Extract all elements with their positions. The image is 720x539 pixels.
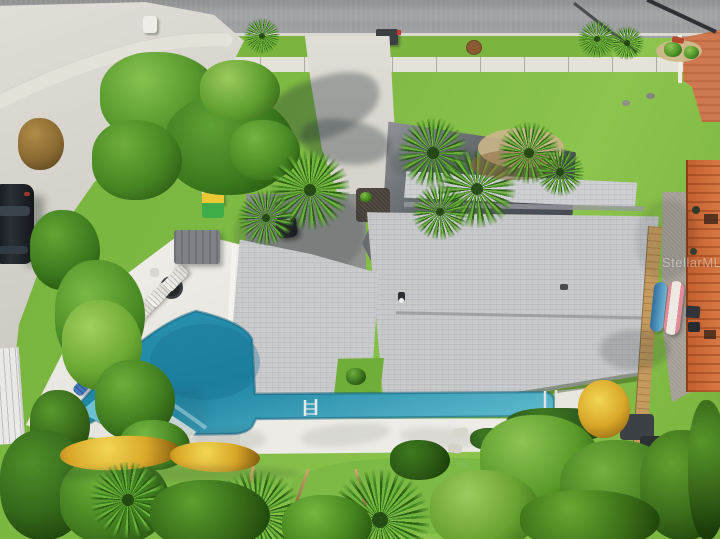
dry-palm (18, 118, 64, 170)
roof-vent-neighbor (692, 206, 700, 214)
neighbor-orange-house (686, 160, 720, 392)
ac-unit (686, 306, 701, 319)
orange-house-window (704, 330, 716, 339)
orange-house-window (704, 214, 718, 224)
fire-pit-chair (150, 268, 159, 277)
pergola-outdoor-kitchen (174, 230, 220, 264)
stepping-stone (448, 443, 463, 453)
aerial-photo-stage: StellarMLS (0, 0, 720, 539)
golden-croton-bush (578, 380, 630, 438)
watermark: StellarMLS (662, 255, 720, 270)
foliage-cluster (92, 120, 182, 200)
house-rear-shrub (390, 440, 450, 480)
ac-unit (688, 322, 700, 332)
foliage-cluster (200, 60, 280, 120)
right-edge-foliage (688, 400, 720, 539)
parkway-palm (244, 18, 280, 54)
kids-playhouse (202, 203, 224, 218)
